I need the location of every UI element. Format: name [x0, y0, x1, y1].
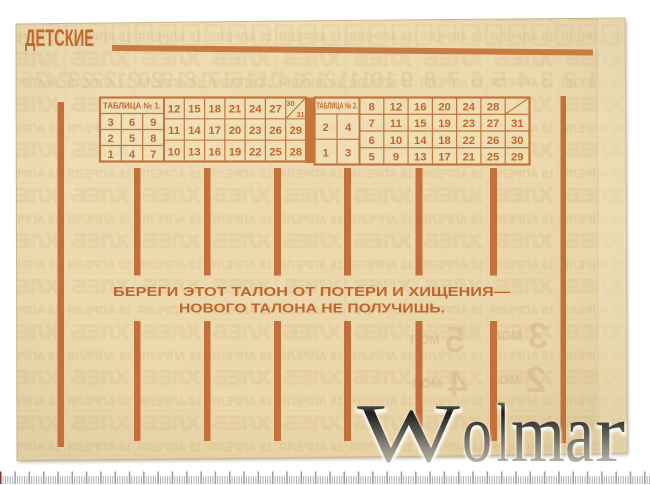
svg-text:13: 13: [188, 146, 201, 158]
svg-text:21: 21: [229, 104, 242, 116]
svg-text:23: 23: [249, 125, 262, 137]
svg-text:3: 3: [540, 67, 553, 94]
svg-text:r: r: [595, 387, 625, 480]
svg-text:17: 17: [208, 125, 221, 137]
svg-text:1: 1: [107, 149, 113, 161]
svg-text:17: 17: [207, 67, 234, 94]
svg-text:26: 26: [269, 125, 282, 137]
svg-text:3: 3: [107, 117, 113, 129]
svg-text:ДЕТСКИЕ: ДЕТСКИЕ: [25, 25, 94, 52]
svg-text:22: 22: [463, 135, 476, 147]
svg-text:16: 16: [230, 67, 257, 94]
svg-text:2: 2: [323, 122, 329, 134]
svg-text:27: 27: [487, 118, 500, 130]
svg-text:11: 11: [390, 118, 402, 130]
svg-text:20: 20: [229, 125, 242, 137]
svg-text:2: 2: [563, 67, 576, 94]
svg-text:15: 15: [414, 118, 427, 130]
svg-text:7: 7: [368, 118, 374, 130]
svg-text:14: 14: [276, 67, 303, 94]
svg-text:14: 14: [414, 135, 427, 147]
svg-text:20: 20: [137, 67, 164, 94]
svg-text:31: 31: [297, 110, 305, 119]
svg-text:8: 8: [368, 101, 374, 113]
svg-text:9: 9: [393, 152, 399, 164]
svg-text:21: 21: [114, 67, 141, 94]
svg-text:7: 7: [447, 67, 460, 94]
svg-text:6: 6: [129, 117, 135, 129]
svg-text:28: 28: [290, 146, 303, 158]
svg-text:29: 29: [290, 125, 303, 137]
svg-text:27: 27: [269, 104, 282, 116]
svg-text:5: 5: [368, 152, 374, 164]
svg-text:6: 6: [368, 135, 374, 147]
svg-text:17: 17: [438, 152, 451, 164]
svg-text:1: 1: [323, 147, 329, 159]
svg-text:19: 19: [438, 118, 451, 130]
svg-text:15: 15: [254, 67, 281, 94]
svg-text:24: 24: [249, 104, 262, 116]
svg-text:10: 10: [370, 67, 397, 94]
svg-text:25: 25: [269, 146, 282, 158]
svg-text:12: 12: [324, 67, 351, 94]
svg-text:4: 4: [516, 67, 530, 94]
svg-text:24: 24: [463, 101, 476, 113]
svg-text:12: 12: [390, 101, 403, 113]
svg-text:20: 20: [438, 101, 451, 113]
svg-text:25: 25: [487, 152, 500, 164]
svg-text:7: 7: [150, 149, 156, 161]
svg-text:2: 2: [107, 133, 113, 145]
svg-text:6: 6: [470, 67, 483, 94]
svg-text:11: 11: [348, 67, 373, 94]
svg-text:3: 3: [345, 147, 351, 159]
svg-text:18: 18: [438, 135, 451, 147]
svg-text:БЕРЕГИ ЭТОТ ТАЛОН ОТ ПОТЕРИ И: БЕРЕГИ ЭТОТ ТАЛОН ОТ ПОТЕРИ И ХИЩЕНИЯ—: [113, 284, 510, 299]
svg-text:24: 24: [43, 67, 70, 94]
svg-text:22: 22: [91, 67, 118, 94]
svg-text:15: 15: [188, 104, 201, 116]
svg-text:W: W: [357, 387, 461, 480]
svg-text:13: 13: [300, 67, 327, 94]
svg-text:30: 30: [287, 99, 295, 108]
svg-text:14: 14: [188, 125, 201, 137]
svg-text:8: 8: [423, 67, 436, 94]
svg-text:НОВОГО ТАЛОНА НЕ ПОЛУЧИШЬ.: НОВОГО ТАЛОНА НЕ ПОЛУЧИШЬ.: [179, 301, 445, 316]
svg-text:23: 23: [67, 67, 94, 94]
svg-text:o: o: [462, 387, 492, 480]
svg-text:12: 12: [168, 104, 181, 116]
svg-text:11: 11: [168, 125, 180, 137]
svg-text:10: 10: [390, 135, 403, 147]
svg-text:21: 21: [463, 152, 476, 164]
svg-text:a: a: [565, 387, 594, 480]
svg-text:9: 9: [150, 117, 156, 129]
svg-text:4: 4: [129, 149, 136, 161]
svg-text:1: 1: [587, 67, 600, 94]
svg-text:5: 5: [493, 67, 506, 94]
svg-text:25: 25: [21, 67, 48, 94]
svg-text:4: 4: [345, 122, 352, 134]
svg-text:18: 18: [208, 104, 221, 116]
svg-text:23: 23: [463, 118, 476, 130]
svg-text:22: 22: [249, 146, 262, 158]
svg-text:m: m: [511, 387, 565, 480]
svg-text:8: 8: [150, 133, 156, 145]
svg-text:16: 16: [208, 146, 221, 158]
svg-text:31: 31: [511, 118, 524, 130]
svg-text:ТАБЛИЦА № 1.: ТАБЛИЦА № 1.: [103, 101, 161, 111]
svg-text:19: 19: [160, 67, 187, 94]
svg-text:l: l: [497, 387, 509, 480]
svg-text:10: 10: [168, 146, 181, 158]
svg-text:18: 18: [184, 67, 211, 94]
svg-text:19: 19: [229, 146, 242, 158]
svg-text:5: 5: [129, 133, 135, 145]
svg-text:29: 29: [511, 152, 524, 164]
svg-text:30: 30: [511, 135, 524, 147]
svg-text:13: 13: [414, 152, 427, 164]
svg-text:9: 9: [400, 67, 413, 94]
svg-text:ТАБЛИЦА № 2.: ТАБЛИЦА № 2.: [317, 101, 358, 111]
svg-text:16: 16: [414, 101, 427, 113]
svg-text:26: 26: [487, 135, 500, 147]
svg-text:28: 28: [487, 101, 500, 113]
